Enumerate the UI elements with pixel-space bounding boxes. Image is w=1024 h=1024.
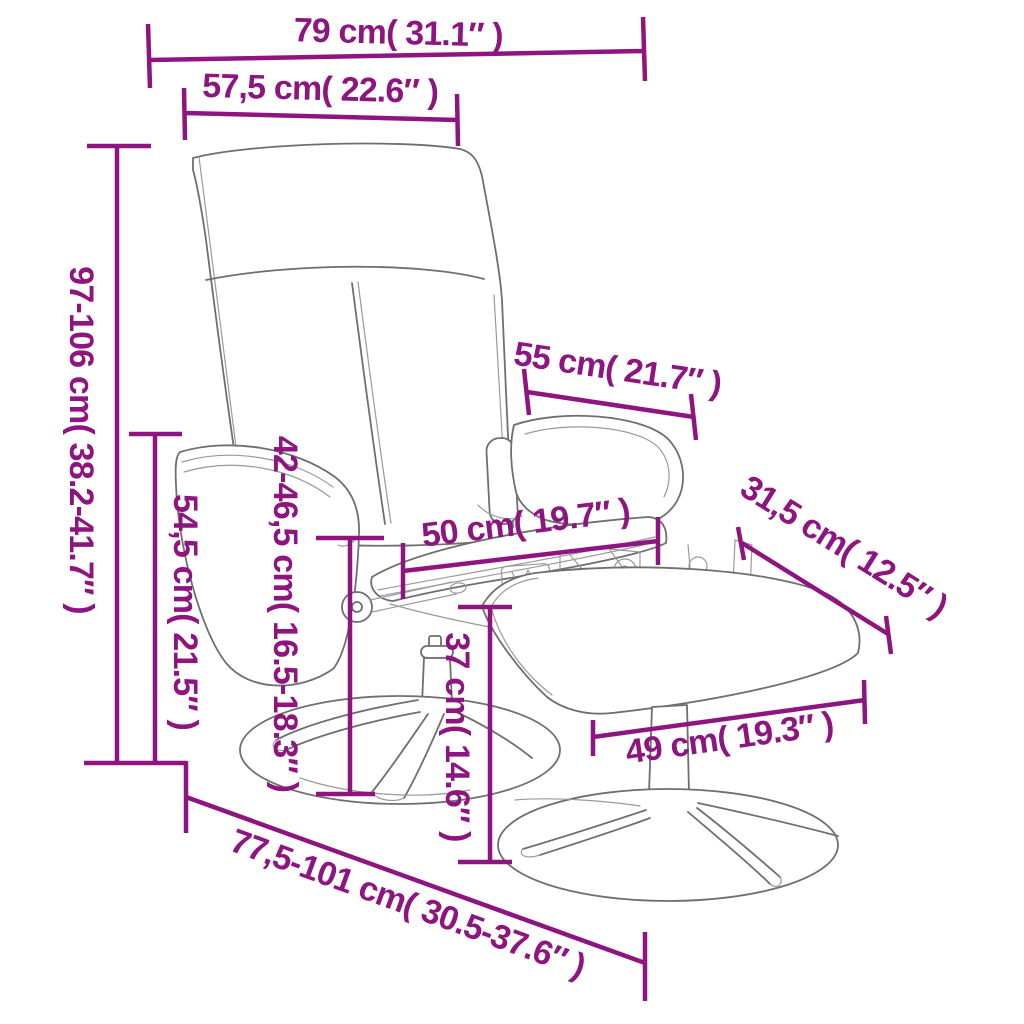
footstool-base xyxy=(498,789,838,901)
dim-backrest-width: 57,5 cm( 22.6″ ) xyxy=(184,67,458,146)
dim-armrest-height-label: 54,5 cm( 21.5″ ) xyxy=(166,494,204,730)
dim-backrest-width-label: 57,5 cm( 22.6″ ) xyxy=(202,67,439,111)
dim-overall-height-label: 97-106 cm( 38.2-41.7″ ) xyxy=(62,266,100,614)
footstool-cushion xyxy=(482,567,859,713)
dim-seat-height-label: 42-46,5 cm( 16.5-18.3″ ) xyxy=(266,436,304,792)
dim-overall-height: 97-106 cm( 38.2-41.7″ ) xyxy=(62,146,151,763)
dim-overall-width-label: 79 cm( 31.1″ ) xyxy=(293,11,503,54)
product-dimension-image: 79 cm( 31.1″ ) 57,5 cm( 22.6″ ) 97-106 c… xyxy=(0,0,1024,1024)
dimension-diagram: 79 cm( 31.1″ ) 57,5 cm( 22.6″ ) 97-106 c… xyxy=(0,0,1024,1024)
dim-footstool-height-label: 37 cm( 14.6″ ) xyxy=(438,632,476,841)
